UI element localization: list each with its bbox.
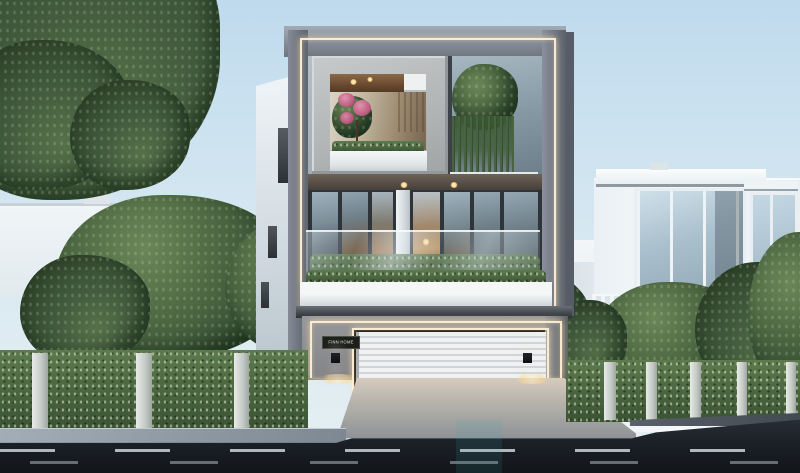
terrace-ceiling-light-1 [350, 79, 357, 85]
hedge-pillar-right-4 [737, 362, 747, 420]
finn-home-sign: FINN HOME [322, 336, 360, 349]
hedge-pillar-left-3 [234, 353, 249, 430]
watermark-tint [456, 420, 502, 473]
hedge-pillar-right-3 [690, 362, 701, 420]
side-terrace-hanging-vines [452, 116, 514, 172]
hedge-pillar-left-2 [136, 353, 152, 430]
soffit-downlight-1 [400, 182, 408, 188]
side-wall-window-slit-3 [261, 282, 269, 308]
side-wall-window-slit-1 [278, 128, 288, 183]
second-floor-soffit [308, 174, 542, 190]
hedge-pillar-right-2 [646, 362, 657, 420]
main-house-side-wall [256, 76, 292, 354]
street-scene: FINN HOME [0, 0, 800, 473]
terrace-flower-cluster-3 [340, 112, 354, 124]
soffit-downlight-2 [450, 182, 458, 188]
terrace-ceiling-light-2 [367, 77, 373, 82]
terrace-back-slats [398, 92, 426, 132]
facade-frame-right-return [566, 32, 574, 316]
finn-home-sign-label: FINN HOME [326, 338, 356, 347]
road-lane-marking-2 [0, 461, 800, 464]
apron-ground-glow-left [318, 374, 358, 384]
white-planter-band [300, 282, 552, 308]
apron-ground-glow-right [512, 374, 552, 384]
wall-sconce-right [523, 353, 532, 363]
hedge-right [566, 360, 800, 422]
hedge-pillar-right-1 [604, 362, 616, 420]
side-wall-window-slit-2 [268, 226, 277, 258]
hedge-pillar-left-1 [32, 353, 48, 430]
road-lane-marking-1 [0, 449, 800, 452]
hedge-pillar-right-5 [786, 362, 796, 420]
wall-sconce-left [331, 353, 340, 363]
terrace-flower-cluster-2 [353, 100, 371, 116]
terrace-planter-box [330, 151, 427, 171]
terrace-white-beam [404, 74, 426, 92]
